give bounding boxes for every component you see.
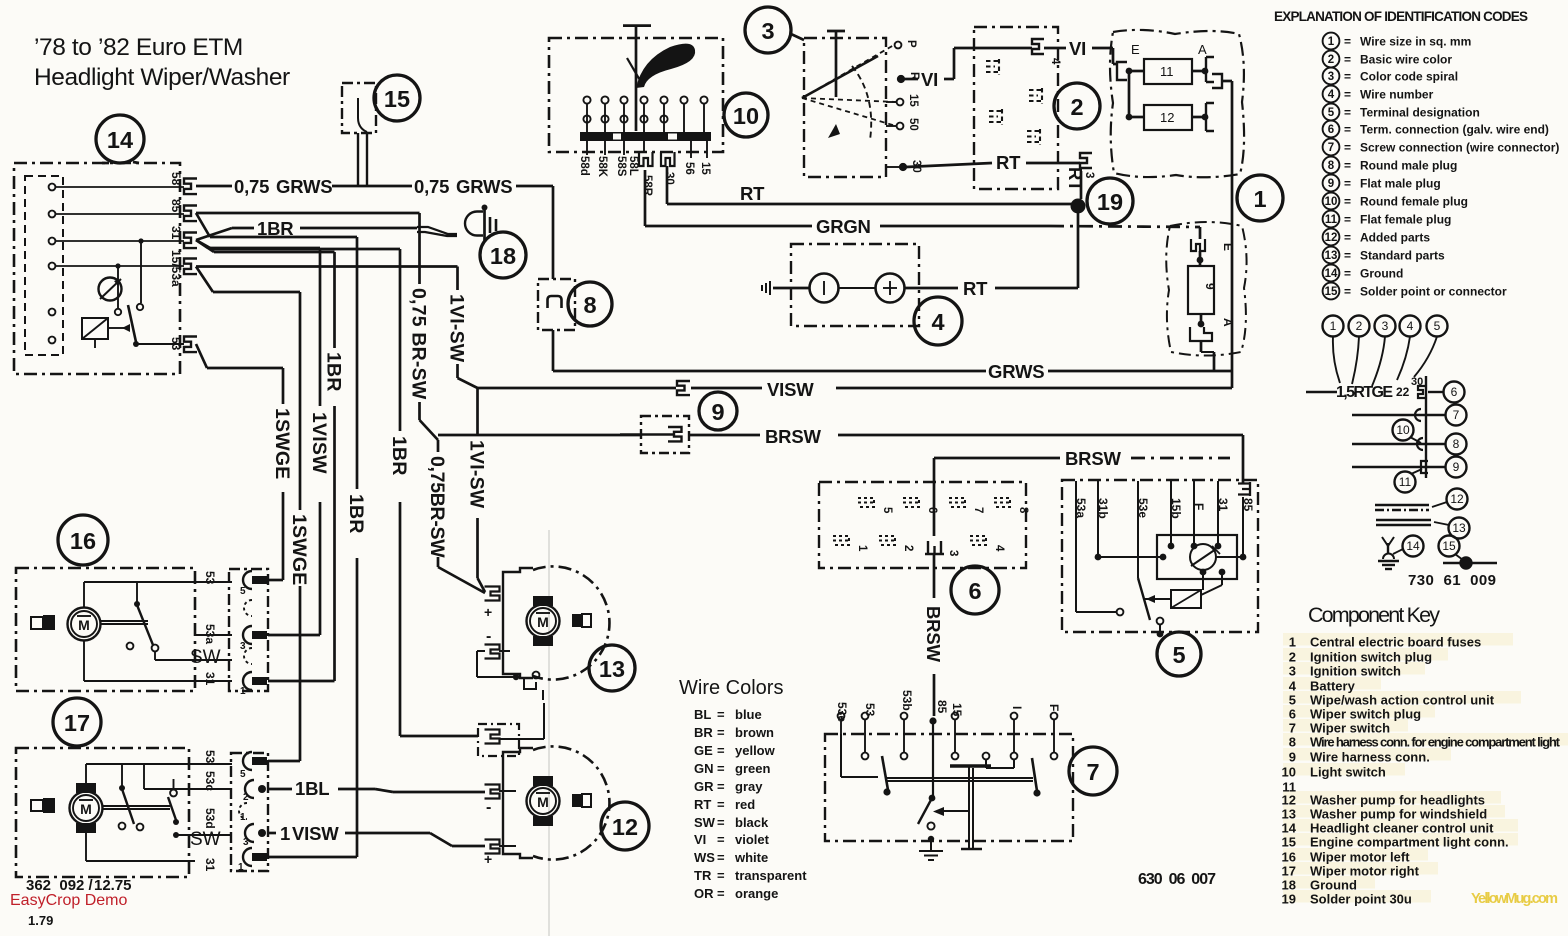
svg-text:SW: SW bbox=[190, 829, 221, 850]
svg-text:7: 7 bbox=[972, 507, 984, 513]
svg-text:Ignition switch plug: Ignition switch plug bbox=[1310, 650, 1432, 665]
svg-text:0,75 BR-SW: 0,75 BR-SW bbox=[408, 288, 430, 400]
svg-text:19: 19 bbox=[1282, 892, 1296, 907]
svg-text:15: 15 bbox=[699, 162, 711, 175]
svg-text:2: 2 bbox=[1328, 54, 1334, 66]
svg-text:10: 10 bbox=[1396, 423, 1410, 437]
svg-text:8: 8 bbox=[1017, 507, 1029, 514]
svg-text:9: 9 bbox=[1328, 178, 1334, 190]
svg-text:7: 7 bbox=[1086, 759, 1099, 785]
svg-text:Flat female plug: Flat female plug bbox=[1360, 213, 1451, 227]
svg-text:10: 10 bbox=[733, 103, 759, 129]
svg-text:=: = bbox=[717, 868, 725, 883]
svg-text:Wiper switch: Wiper switch bbox=[1310, 721, 1390, 736]
svg-text:58d: 58d bbox=[578, 156, 590, 176]
svg-text:Basic wire color: Basic wire color bbox=[1360, 53, 1452, 67]
svg-text:BL: BL bbox=[694, 707, 711, 722]
svg-text:4: 4 bbox=[931, 309, 944, 335]
svg-text:1BR: 1BR bbox=[257, 218, 293, 239]
svg-text:9: 9 bbox=[1453, 460, 1460, 474]
svg-text:53e: 53e bbox=[835, 702, 849, 722]
svg-text:7: 7 bbox=[1328, 142, 1334, 154]
svg-text:=: = bbox=[1344, 159, 1351, 173]
svg-text:58S: 58S bbox=[615, 156, 627, 177]
svg-text:GE: GE bbox=[694, 743, 713, 758]
svg-text:=: = bbox=[717, 743, 725, 758]
svg-text:2: 2 bbox=[902, 545, 914, 551]
svg-text:BR: BR bbox=[694, 725, 713, 740]
svg-text:58K: 58K bbox=[596, 156, 608, 178]
svg-text:green: green bbox=[735, 761, 770, 776]
svg-text:6: 6 bbox=[926, 507, 938, 513]
svg-text:=: = bbox=[1344, 177, 1351, 191]
svg-text:1: 1 bbox=[238, 862, 244, 873]
svg-text:GRGN: GRGN bbox=[816, 216, 871, 237]
svg-text:=: = bbox=[717, 832, 725, 847]
svg-text:2: 2 bbox=[1070, 94, 1083, 120]
svg-text:9: 9 bbox=[1289, 750, 1296, 765]
svg-text:BRSW: BRSW bbox=[765, 426, 821, 447]
svg-text:Standard parts: Standard parts bbox=[1360, 249, 1445, 263]
svg-text:14: 14 bbox=[1406, 539, 1420, 553]
svg-text:GRWS: GRWS bbox=[456, 176, 512, 197]
svg-text:4: 4 bbox=[993, 545, 1005, 552]
svg-text:=: = bbox=[1344, 231, 1351, 245]
svg-text:1BR: 1BR bbox=[323, 352, 345, 392]
svg-text:5: 5 bbox=[1434, 319, 1441, 333]
svg-text:=: = bbox=[1344, 70, 1351, 84]
svg-text:Headlight Wiper/Washer: Headlight Wiper/Washer bbox=[34, 64, 290, 91]
svg-text:orange: orange bbox=[735, 886, 778, 901]
svg-text:1SWGE: 1SWGE bbox=[271, 408, 293, 479]
svg-text:15: 15 bbox=[950, 703, 964, 717]
svg-text:M: M bbox=[80, 801, 92, 817]
svg-text:4: 4 bbox=[1049, 58, 1061, 65]
svg-text:=: = bbox=[1344, 213, 1351, 227]
svg-text:56: 56 bbox=[683, 162, 695, 175]
svg-text:yellow: yellow bbox=[735, 743, 776, 758]
svg-text:15/53a: 15/53a bbox=[169, 250, 183, 287]
svg-text:5: 5 bbox=[881, 507, 893, 514]
svg-text:Term. connection (galv. wire e: Term. connection (galv. wire end) bbox=[1360, 123, 1549, 137]
svg-text:SW: SW bbox=[694, 815, 716, 830]
svg-text:=: = bbox=[1344, 106, 1351, 120]
svg-text:53b: 53b bbox=[900, 690, 914, 711]
svg-text:9: 9 bbox=[711, 399, 724, 425]
svg-text:6: 6 bbox=[1328, 124, 1334, 136]
svg-text:RT: RT bbox=[694, 797, 711, 812]
svg-text:Wipe/wash action control unit: Wipe/wash action control unit bbox=[1310, 693, 1495, 708]
svg-text:=: = bbox=[717, 779, 725, 794]
svg-text:Component Key: Component Key bbox=[1308, 603, 1440, 627]
svg-text:=: = bbox=[717, 707, 725, 722]
svg-text:12: 12 bbox=[1282, 793, 1296, 808]
svg-text:18: 18 bbox=[490, 243, 516, 269]
svg-text:7: 7 bbox=[1453, 408, 1460, 422]
svg-text:A: A bbox=[1198, 42, 1207, 57]
svg-text:53: 53 bbox=[203, 750, 217, 764]
svg-text:2: 2 bbox=[243, 792, 249, 803]
svg-text:VI: VI bbox=[1069, 38, 1086, 59]
svg-text:Light switch: Light switch bbox=[1310, 765, 1386, 780]
svg-text:8: 8 bbox=[1328, 160, 1335, 172]
svg-text:15: 15 bbox=[384, 86, 410, 112]
svg-text:31: 31 bbox=[1216, 498, 1230, 512]
svg-text:3: 3 bbox=[243, 837, 249, 848]
svg-text:1VI-SW: 1VI-SW bbox=[466, 440, 488, 509]
svg-text:1.79: 1.79 bbox=[28, 913, 53, 928]
svg-text:Added parts: Added parts bbox=[1360, 231, 1430, 245]
svg-text:15: 15 bbox=[1282, 835, 1296, 850]
svg-text:630 06 007: 630 06 007 bbox=[1138, 871, 1216, 888]
svg-text:16: 16 bbox=[70, 528, 96, 554]
svg-text:Solder point or connector: Solder point or connector bbox=[1360, 285, 1507, 299]
svg-text:black: black bbox=[735, 815, 769, 830]
svg-text:Engine compartment light conn.: Engine compartment light conn. bbox=[1310, 835, 1509, 850]
svg-text:=: = bbox=[717, 797, 725, 812]
svg-text:1BL: 1BL bbox=[295, 778, 329, 799]
svg-text:53a: 53a bbox=[203, 624, 217, 644]
svg-text:2: 2 bbox=[1289, 650, 1296, 665]
svg-text:5: 5 bbox=[240, 769, 246, 780]
svg-text:1VISW: 1VISW bbox=[308, 412, 330, 474]
svg-text:6: 6 bbox=[1289, 707, 1296, 722]
svg-text:12: 12 bbox=[1450, 492, 1464, 506]
svg-text:0,75BR-SW: 0,75BR-SW bbox=[426, 456, 448, 558]
svg-text:Screw connection (wire connect: Screw connection (wire connector) bbox=[1360, 141, 1559, 155]
svg-text:=: = bbox=[1344, 123, 1351, 137]
svg-text:6: 6 bbox=[1451, 385, 1458, 399]
svg-text:-: - bbox=[486, 628, 491, 645]
svg-text:53d: 53d bbox=[203, 808, 217, 829]
svg-text:15: 15 bbox=[1442, 539, 1456, 553]
svg-text:YellowMug.com: YellowMug.com bbox=[1471, 891, 1558, 907]
svg-text:+: + bbox=[484, 851, 492, 867]
svg-text:Ground: Ground bbox=[1310, 878, 1357, 893]
svg-text:Headlight cleaner control unit: Headlight cleaner control unit bbox=[1310, 821, 1494, 836]
svg-text:2: 2 bbox=[1356, 319, 1363, 333]
svg-text:18: 18 bbox=[1282, 878, 1296, 893]
svg-text:14: 14 bbox=[1282, 821, 1297, 836]
svg-text:RT: RT bbox=[963, 278, 988, 299]
svg-text:RT: RT bbox=[1065, 167, 1086, 192]
svg-text:13: 13 bbox=[1282, 807, 1296, 822]
svg-text:17: 17 bbox=[1282, 864, 1296, 879]
svg-text:P: P bbox=[905, 40, 917, 48]
svg-text:17: 17 bbox=[64, 710, 90, 736]
svg-text:transparent: transparent bbox=[735, 868, 807, 883]
svg-text:14: 14 bbox=[1325, 268, 1338, 280]
svg-text:3: 3 bbox=[1289, 664, 1296, 679]
svg-text:14: 14 bbox=[107, 127, 133, 153]
svg-text:85: 85 bbox=[169, 199, 183, 213]
svg-text:31b: 31b bbox=[1096, 498, 1110, 519]
svg-text:53a: 53a bbox=[1074, 498, 1088, 518]
svg-text:BRSW: BRSW bbox=[923, 606, 944, 662]
svg-text:Ground: Ground bbox=[1360, 267, 1403, 281]
svg-text:16: 16 bbox=[1282, 850, 1296, 865]
svg-text:violet: violet bbox=[735, 832, 770, 847]
svg-text:=: = bbox=[1344, 267, 1351, 281]
svg-text:Wire size in sq. mm: Wire size in sq. mm bbox=[1360, 35, 1471, 49]
svg-text:Central electric board fuses: Central electric board fuses bbox=[1310, 635, 1481, 650]
svg-text:31: 31 bbox=[169, 226, 183, 240]
svg-text:=: = bbox=[1344, 195, 1351, 209]
svg-text:=: = bbox=[717, 850, 725, 865]
svg-text:EasyCrop Demo: EasyCrop Demo bbox=[10, 892, 127, 909]
svg-text:1: 1 bbox=[240, 686, 246, 697]
svg-text:1: 1 bbox=[1253, 186, 1266, 212]
svg-text:M: M bbox=[537, 614, 549, 630]
svg-text:13: 13 bbox=[1452, 521, 1466, 535]
svg-text:1BR: 1BR bbox=[388, 436, 410, 476]
svg-text:15: 15 bbox=[1325, 286, 1338, 298]
svg-text:3: 3 bbox=[1382, 319, 1389, 333]
svg-text:13: 13 bbox=[1325, 250, 1338, 262]
svg-text:11: 11 bbox=[1325, 214, 1338, 226]
svg-text:’78 to ’82 Euro ETM: ’78 to ’82 Euro ETM bbox=[34, 34, 243, 61]
svg-text:3: 3 bbox=[240, 641, 246, 652]
svg-text:58R: 58R bbox=[641, 175, 653, 197]
svg-text:53: 53 bbox=[169, 337, 183, 351]
svg-text:VISW: VISW bbox=[292, 823, 339, 844]
svg-text:1,5RTGE: 1,5RTGE bbox=[1336, 384, 1393, 401]
svg-text:Washer pump for headlights: Washer pump for headlights bbox=[1310, 793, 1485, 808]
svg-text:1: 1 bbox=[240, 812, 246, 823]
svg-text:11: 11 bbox=[1160, 64, 1174, 79]
svg-text:Flat male plug: Flat male plug bbox=[1360, 177, 1441, 191]
svg-text:31: 31 bbox=[203, 672, 217, 686]
svg-text:TR: TR bbox=[694, 868, 712, 883]
svg-text:4: 4 bbox=[1407, 319, 1414, 333]
svg-text:0,75: 0,75 bbox=[414, 176, 449, 197]
svg-text:WS: WS bbox=[694, 850, 715, 865]
svg-text:EXPLANATION OF IDENTIFICATION: EXPLANATION OF IDENTIFICATION CODES bbox=[1274, 9, 1528, 24]
svg-text:30: 30 bbox=[1411, 376, 1423, 388]
svg-text:=: = bbox=[717, 725, 725, 740]
svg-text:VI: VI bbox=[921, 69, 938, 90]
svg-text:12: 12 bbox=[612, 814, 638, 840]
svg-text:85: 85 bbox=[935, 700, 949, 714]
svg-text:=: = bbox=[1344, 53, 1351, 67]
svg-text:1: 1 bbox=[1328, 36, 1335, 48]
svg-text:GN: GN bbox=[694, 761, 714, 776]
svg-text:3: 3 bbox=[947, 550, 959, 556]
svg-text:-: - bbox=[486, 799, 491, 816]
svg-text:Ignition switch: Ignition switch bbox=[1310, 664, 1401, 679]
svg-text:M: M bbox=[78, 617, 90, 633]
svg-text:white: white bbox=[734, 850, 768, 865]
svg-text:30: 30 bbox=[663, 172, 675, 185]
svg-text:=: = bbox=[1344, 285, 1351, 299]
svg-text:Wire Colors: Wire Colors bbox=[679, 677, 783, 699]
svg-text:Wire harness conn. for engine: Wire harness conn. for engine compartmen… bbox=[1310, 735, 1561, 750]
svg-text:58: 58 bbox=[169, 172, 183, 186]
svg-text:58L: 58L bbox=[627, 156, 639, 176]
svg-text:=: = bbox=[1344, 88, 1351, 102]
svg-text:M: M bbox=[537, 794, 549, 810]
svg-text:7: 7 bbox=[1289, 721, 1296, 736]
svg-text:8: 8 bbox=[583, 292, 596, 318]
svg-text:10: 10 bbox=[1325, 196, 1338, 208]
svg-text:Wiper switch plug: Wiper switch plug bbox=[1310, 707, 1421, 722]
svg-text:GR: GR bbox=[694, 779, 714, 794]
svg-text:OR: OR bbox=[694, 886, 714, 901]
svg-text:=: = bbox=[717, 761, 725, 776]
svg-text:F: F bbox=[1047, 704, 1061, 711]
svg-text:E: E bbox=[1131, 42, 1140, 57]
svg-text:Color code spiral: Color code spiral bbox=[1360, 70, 1458, 84]
svg-text:red: red bbox=[735, 797, 755, 812]
svg-text:=: = bbox=[1344, 249, 1351, 263]
svg-text:BRSW: BRSW bbox=[1065, 448, 1121, 469]
svg-text:GRWS: GRWS bbox=[276, 176, 332, 197]
svg-text:GRWS: GRWS bbox=[988, 361, 1044, 382]
svg-text:8: 8 bbox=[1453, 437, 1460, 451]
svg-text:1VI-SW: 1VI-SW bbox=[446, 294, 468, 363]
svg-text:1: 1 bbox=[280, 823, 290, 844]
svg-text:9: 9 bbox=[1203, 283, 1217, 290]
svg-text:3: 3 bbox=[1328, 71, 1334, 83]
svg-text:53: 53 bbox=[203, 571, 217, 585]
svg-text:Terminal designation: Terminal designation bbox=[1360, 106, 1480, 120]
svg-text:13: 13 bbox=[599, 656, 625, 682]
svg-text:I: I bbox=[1010, 706, 1024, 709]
svg-text:15: 15 bbox=[907, 94, 919, 107]
svg-text:4: 4 bbox=[1328, 89, 1335, 101]
svg-text:Wire number: Wire number bbox=[1360, 88, 1434, 102]
svg-text:1SWGE: 1SWGE bbox=[288, 514, 310, 585]
svg-text:=: = bbox=[717, 815, 725, 830]
svg-text:3: 3 bbox=[761, 18, 774, 44]
svg-text:15b: 15b bbox=[1169, 498, 1183, 519]
svg-text:5: 5 bbox=[1328, 107, 1335, 119]
svg-text:Washer pump for windshield: Washer pump for windshield bbox=[1310, 807, 1487, 822]
svg-text:5: 5 bbox=[1289, 693, 1296, 708]
svg-text:31: 31 bbox=[203, 858, 217, 872]
svg-text:53c: 53c bbox=[203, 771, 217, 791]
svg-text:53: 53 bbox=[863, 703, 877, 717]
svg-text:SW: SW bbox=[190, 647, 221, 668]
svg-text:blue: blue bbox=[735, 707, 762, 722]
svg-text:Wire harness conn.: Wire harness conn. bbox=[1310, 750, 1430, 765]
svg-text:53e: 53e bbox=[1136, 498, 1150, 518]
svg-text:1: 1 bbox=[856, 545, 868, 552]
svg-text:+: + bbox=[484, 604, 492, 620]
svg-text:5: 5 bbox=[240, 586, 246, 597]
svg-text:8: 8 bbox=[1289, 735, 1296, 750]
svg-text:1BR: 1BR bbox=[345, 494, 367, 534]
svg-text:Wiper motor left: Wiper motor left bbox=[1310, 850, 1410, 865]
svg-text:4: 4 bbox=[1289, 679, 1297, 694]
svg-text:Solder point 30u: Solder point 30u bbox=[1310, 892, 1412, 907]
svg-text:RT: RT bbox=[740, 183, 765, 204]
svg-text:RT: RT bbox=[996, 152, 1021, 173]
svg-text:brown: brown bbox=[735, 725, 774, 740]
svg-text:Battery: Battery bbox=[1310, 679, 1356, 694]
svg-text:19: 19 bbox=[1097, 189, 1123, 215]
svg-text:=: = bbox=[717, 886, 725, 901]
svg-text:F: F bbox=[1192, 503, 1206, 510]
svg-text:85: 85 bbox=[1241, 498, 1255, 512]
svg-text:=: = bbox=[1344, 35, 1351, 49]
svg-text:50: 50 bbox=[907, 118, 919, 131]
svg-text:10: 10 bbox=[1282, 765, 1296, 780]
svg-text:0,75: 0,75 bbox=[234, 176, 269, 197]
svg-text:5: 5 bbox=[1172, 642, 1185, 668]
svg-text:VI: VI bbox=[694, 832, 706, 847]
svg-text:Round female plug: Round female plug bbox=[1360, 195, 1468, 209]
svg-text:=: = bbox=[1344, 141, 1351, 155]
svg-text:12: 12 bbox=[1325, 232, 1338, 244]
svg-text:VISW: VISW bbox=[767, 379, 814, 400]
svg-text:1: 1 bbox=[1289, 635, 1296, 650]
svg-text:6: 6 bbox=[968, 578, 981, 604]
svg-text:730 61 009: 730 61 009 bbox=[1408, 572, 1496, 589]
svg-text:11: 11 bbox=[1399, 475, 1412, 489]
svg-text:22: 22 bbox=[1396, 385, 1410, 399]
svg-text:1: 1 bbox=[1330, 319, 1337, 333]
svg-text:Wiper motor right: Wiper motor right bbox=[1310, 864, 1420, 879]
svg-text:Round male plug: Round male plug bbox=[1360, 159, 1457, 173]
svg-text:12: 12 bbox=[1160, 110, 1174, 125]
svg-text:gray: gray bbox=[735, 779, 763, 794]
